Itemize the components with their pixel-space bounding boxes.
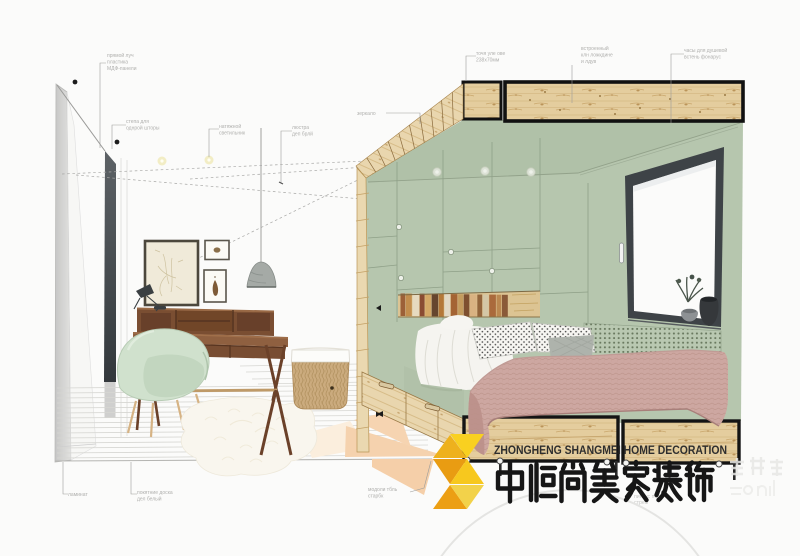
svg-text:часы для душевой: часы для душевой	[684, 47, 727, 54]
svg-text:зеркало: зеркало	[357, 111, 376, 117]
svg-text:встроенный: встроенный	[581, 45, 609, 52]
svg-text:модоли тбль: модоли тбль	[368, 487, 398, 493]
svg-text:ZHONGHENG SHANGMEI HOME DECORA: ZHONGHENG SHANGMEI HOME DECORATION	[494, 443, 727, 457]
svg-text:прямой луч: прямой луч	[107, 52, 134, 59]
svg-text:степа для: степа для	[126, 119, 149, 125]
svg-text:клн ложкдине: клн ложкдине	[581, 52, 613, 58]
svg-text:светильник: светильник	[219, 130, 246, 136]
svg-text:деп брлй: деп брлй	[292, 130, 313, 137]
svg-text:точя уле ове: точя уле ове	[476, 51, 505, 57]
svg-text:пластика: пластика	[107, 59, 128, 65]
svg-text:встень фонарус: встень фонарус	[684, 54, 721, 60]
svg-text:и лдув: и лдув	[581, 59, 597, 65]
svg-text:238х70мм: 238х70мм	[476, 57, 500, 63]
svg-text:ламинат: ламинат	[68, 492, 88, 498]
svg-text:покятние доска: покятние доска	[137, 490, 173, 496]
svg-text:люстра: люстра	[292, 125, 309, 131]
svg-text:МДФ-панели: МДФ-панели	[107, 66, 137, 72]
svg-text:натяжной: натяжной	[219, 123, 241, 130]
svg-text:старбк: старбк	[368, 493, 384, 499]
svg-text:дел белый: дел белый	[137, 495, 162, 502]
svg-text:однрой шторы: однрой шторы	[126, 124, 160, 131]
